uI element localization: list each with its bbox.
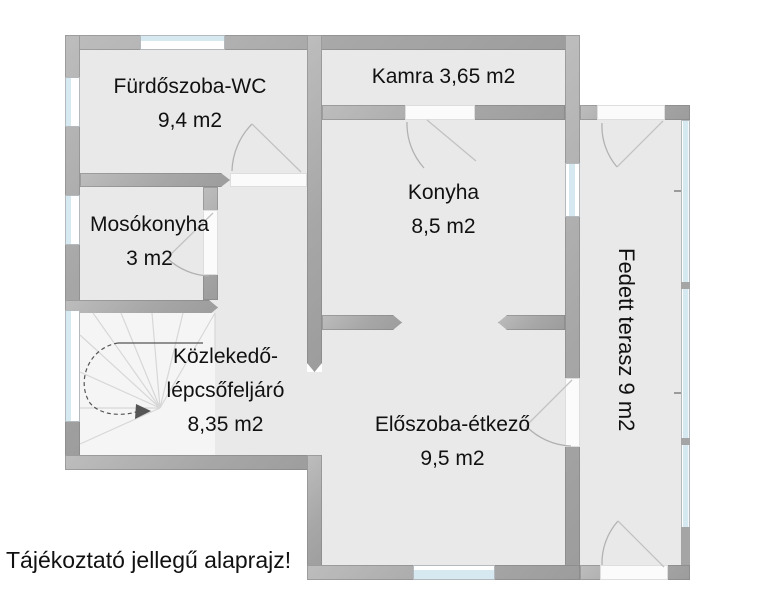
- wall-eloszoba-left: [307, 455, 322, 580]
- wall-bathroom-bottom: [80, 173, 230, 187]
- room-label-kozlekedo: Közlekedő- lépcsőfeljáró 8,35 m2: [118, 340, 333, 442]
- room-name-line1: Közlekedő-: [118, 340, 333, 374]
- wall-kozlekedo-bottom: [65, 455, 322, 470]
- room-label-terasz: Fedett terasz 9 m2: [600, 120, 652, 560]
- window-konyha-terrace: [565, 163, 580, 217]
- room-name: Fürdőszoba-WC: [85, 70, 295, 104]
- room-area: 9,4 m2: [85, 104, 295, 138]
- window-bathroom-left: [65, 77, 80, 127]
- wall-mosokonyha-bottom: [65, 300, 218, 315]
- room-name-line2: lépcsőfeljáró: [118, 374, 333, 408]
- room-label-furdoszoba: Fürdőszoba-WC 9,4 m2: [85, 70, 295, 138]
- room-area: 8,35 m2: [118, 408, 333, 442]
- room-label-kamra: Kamra 3,65 m2: [322, 60, 565, 94]
- railing-post: [681, 438, 690, 445]
- wall-center-divider: [307, 35, 322, 372]
- room-name: Konyha: [322, 176, 565, 210]
- window-eloszoba-bottom: [413, 565, 495, 580]
- room-name: Előszoba-étkező: [330, 408, 575, 442]
- wall-konyha-stub-right: [498, 315, 565, 330]
- room-name: Fedett terasz 9 m2: [609, 248, 643, 431]
- window-kozlekedo-left: [65, 310, 80, 422]
- wall-konyha-stub-left: [322, 315, 402, 330]
- door-opening-bathroom: [230, 173, 307, 187]
- floor-main-wing: [322, 50, 565, 565]
- room-name: Mosókonyha: [72, 208, 227, 242]
- terrace-glass-railing: [681, 120, 690, 565]
- railing-post: [681, 282, 690, 289]
- room-label-eloszoba: Előszoba-étkező 9,5 m2: [330, 408, 575, 476]
- room-label-mosokonyha: Mosókonyha 3 m2: [72, 208, 227, 276]
- railing-corner-post: [681, 527, 690, 565]
- room-area: 9,5 m2: [330, 442, 575, 476]
- disclaimer-note: Tájékoztató jellegű alaprajz!: [6, 547, 291, 574]
- floor-plan: Fürdőszoba-WC 9,4 m2 Kamra 3,65 m2 Konyh…: [0, 0, 771, 597]
- room-label-konyha: Konyha 8,5 m2: [322, 176, 565, 244]
- window-bathroom-top: [140, 35, 225, 50]
- room-name: Kamra 3,65 m2: [322, 60, 565, 94]
- door-opening-kamra: [405, 105, 475, 120]
- door-opening-terrace-bottom: [600, 565, 668, 580]
- window-tick: [674, 190, 681, 192]
- door-opening-terrace-top: [597, 105, 665, 120]
- wall-house-right: [565, 35, 580, 580]
- room-area: 3 m2: [72, 242, 227, 276]
- room-area: 8,5 m2: [322, 210, 565, 244]
- window-tick: [674, 392, 681, 394]
